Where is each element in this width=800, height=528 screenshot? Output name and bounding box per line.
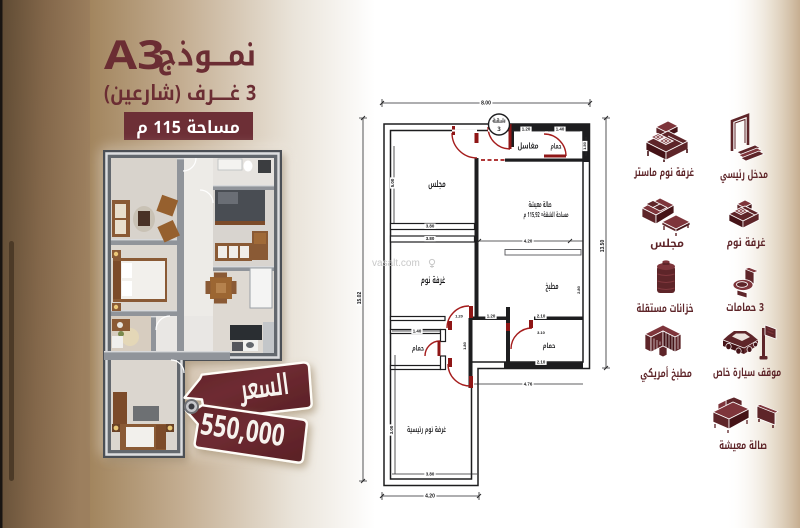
svg-text:vasalt.com: vasalt.com <box>372 258 420 269</box>
svg-text:15.02: 15.02 <box>357 292 363 305</box>
svg-text:1.20: 1.20 <box>487 314 496 319</box>
svg-text:3.10: 3.10 <box>537 330 546 335</box>
svg-text:13.50: 13.50 <box>600 240 606 253</box>
svg-text:3.00: 3.00 <box>389 425 394 434</box>
svg-text:8.00: 8.00 <box>481 101 491 107</box>
svg-text:3.80: 3.80 <box>426 472 435 477</box>
svg-text:4.20: 4.20 <box>425 494 435 500</box>
svg-text:4.20: 4.20 <box>524 239 533 244</box>
svg-text:2.10: 2.10 <box>537 360 546 365</box>
svg-text:2.80: 2.80 <box>576 285 581 294</box>
svg-text:1.50: 1.50 <box>582 141 587 150</box>
svg-text:1.20: 1.20 <box>455 314 464 319</box>
svg-text:1.80: 1.80 <box>462 341 467 350</box>
svg-text:3.80: 3.80 <box>426 236 435 241</box>
svg-text:5.00: 5.00 <box>390 178 395 187</box>
svg-text:1.20: 1.20 <box>522 127 531 132</box>
svg-text:3.80: 3.80 <box>426 224 435 229</box>
svg-text:2.10: 2.10 <box>537 314 546 319</box>
svg-text:4.76: 4.76 <box>524 382 533 387</box>
svg-text:1.40: 1.40 <box>413 329 422 334</box>
svg-text:1.40: 1.40 <box>556 127 565 132</box>
